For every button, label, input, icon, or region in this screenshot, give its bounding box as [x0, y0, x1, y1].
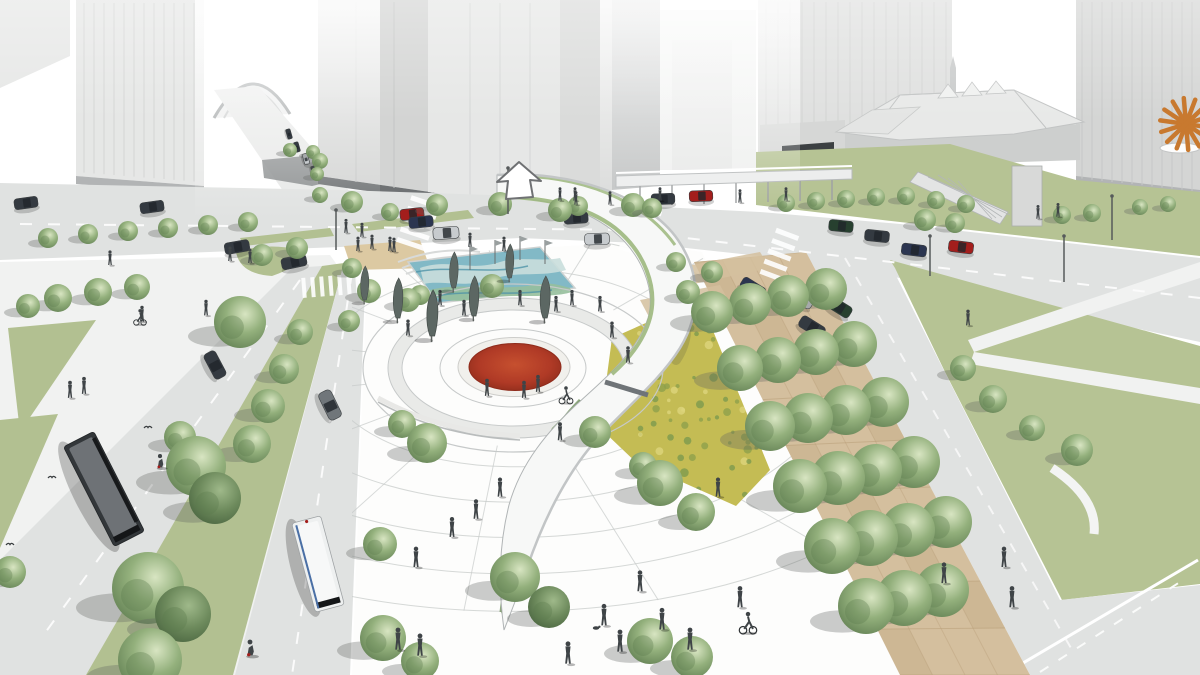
fog-top — [0, 0, 1200, 120]
red-flower-circle — [469, 344, 561, 391]
rendering-canvas — [0, 0, 1200, 675]
car-silver — [583, 233, 611, 250]
car-red — [688, 190, 714, 206]
